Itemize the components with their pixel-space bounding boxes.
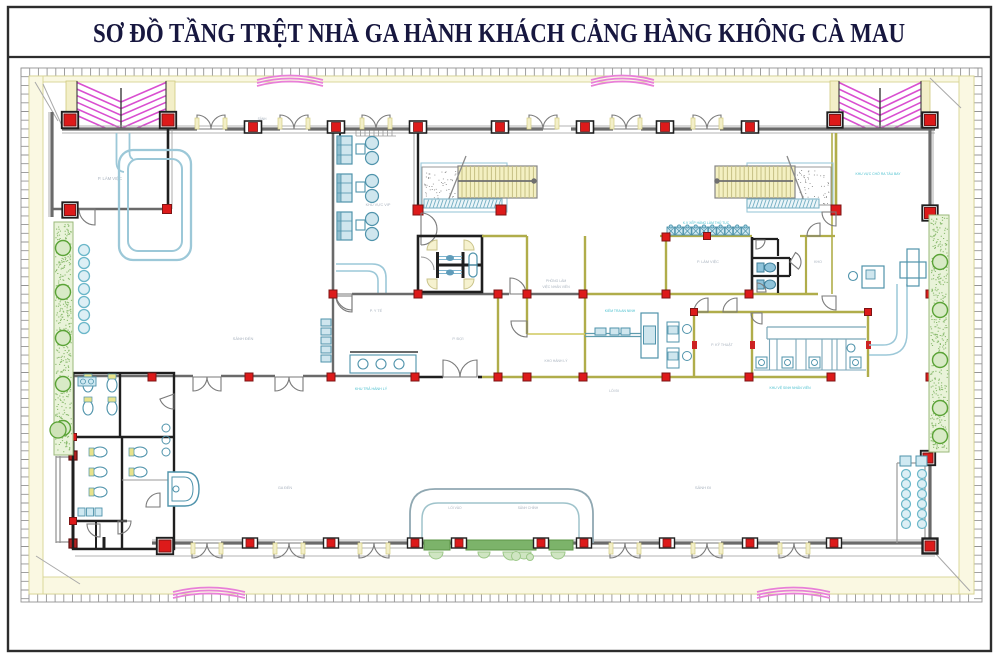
svg-text:KIỂM TRA AN NINH: KIỂM TRA AN NINH — [605, 308, 636, 313]
svg-text:KHO: KHO — [814, 260, 822, 264]
svg-text:VIỆC NHÂN VIÊN: VIỆC NHÂN VIÊN — [542, 284, 570, 289]
svg-text:KHO HÀNH LÝ: KHO HÀNH LÝ — [545, 359, 569, 363]
svg-text:SƠ ĐỒ TẦNG TRỆT NHÀ GA HÀNH KH: SƠ ĐỒ TẦNG TRỆT NHÀ GA HÀNH KHÁCH CẢNG H… — [93, 17, 905, 48]
svg-text:P. Y TẾ: P. Y TẾ — [370, 308, 383, 313]
svg-text:GA ĐẾN: GA ĐẾN — [278, 485, 293, 490]
svg-text:SẢNH CHÍNH: SẢNH CHÍNH — [518, 505, 539, 510]
svg-text:SẢNH: SẢNH — [258, 116, 268, 121]
svg-text:KHU VỰC CHỜ RA TÀU BAY: KHU VỰC CHỜ RA TÀU BAY — [855, 171, 901, 176]
svg-text:LỐI VÀO: LỐI VÀO — [448, 505, 462, 510]
svg-text:LỐI ĐI: LỐI ĐI — [609, 388, 619, 393]
svg-text:P. KỸ THUẬT: P. KỸ THUẬT — [711, 342, 733, 347]
svg-text:SẢNH ĐẾN: SẢNH ĐẾN — [233, 336, 254, 341]
svg-text:P. LÀM VIỆC: P. LÀM VIỆC — [697, 259, 719, 264]
svg-text:PHÒNG LÀM: PHÒNG LÀM — [546, 278, 567, 283]
svg-text:KHU TRẢ HÀNH LÝ: KHU TRẢ HÀNH LÝ — [355, 386, 388, 391]
svg-text:KHU VỆ SINH NHÂN VIÊN: KHU VỆ SINH NHÂN VIÊN — [769, 385, 811, 390]
svg-text:SẢNH ĐI: SẢNH ĐI — [695, 485, 711, 490]
svg-text:P. ĐỢI: P. ĐỢI — [452, 337, 463, 341]
svg-text:K.V XẾP HÀNG LÀM THỦ TỤC: K.V XẾP HÀNG LÀM THỦ TỤC — [683, 220, 730, 225]
svg-text:KHU VỰC VIP: KHU VỰC VIP — [366, 203, 391, 207]
